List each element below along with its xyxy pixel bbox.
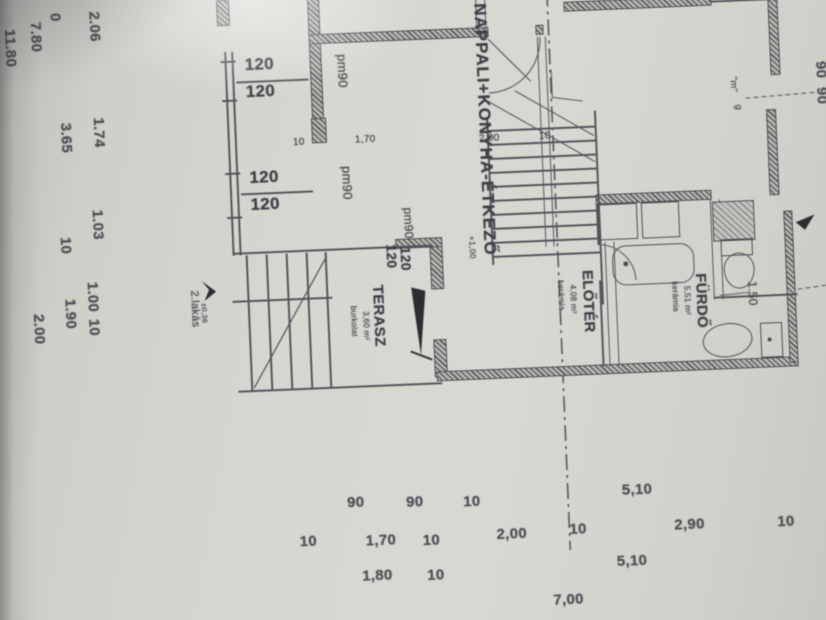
row1-dim-0: 90 bbox=[347, 495, 365, 511]
left-dim-2: 7.80 bbox=[28, 22, 44, 53]
left-dim-1: 0 bbox=[47, 13, 62, 22]
left-dim-6: 1.03 bbox=[90, 209, 106, 240]
dim-extension-right-low bbox=[797, 285, 826, 289]
sill-label-1: pm90 bbox=[335, 54, 349, 88]
window-label-1b: 120 bbox=[245, 82, 275, 100]
wall-top-door-jamb bbox=[535, 25, 543, 35]
area-label-furdo: 5,51 m² bbox=[682, 286, 691, 316]
row2-dim-4: 10 bbox=[569, 521, 587, 537]
entrance-arrow-tick bbox=[411, 351, 432, 361]
entrance-arrow bbox=[411, 287, 428, 356]
elevation-arrow-unit bbox=[202, 281, 217, 302]
sill-label-2: pm90 bbox=[340, 166, 354, 200]
stair-dim-2: 10 bbox=[539, 131, 551, 141]
left-dim-0: 2.06 bbox=[86, 11, 102, 42]
row2-dim-5: 2,90 bbox=[674, 516, 705, 532]
sink-unit-right bbox=[641, 201, 680, 239]
row1-dim-2: 10 bbox=[463, 494, 481, 510]
finish-label-eloter: kerámia bbox=[556, 280, 565, 311]
dim-extension-right-top bbox=[745, 92, 815, 98]
window-label-2b: 120 bbox=[250, 195, 280, 213]
door-leaf bbox=[488, 37, 531, 83]
row2-dim-3: 2,00 bbox=[496, 526, 527, 542]
row1-dim-1: 90 bbox=[406, 494, 424, 510]
window-label-2a: 120 bbox=[249, 168, 279, 186]
room-label-eloter: ELŐTÉR bbox=[580, 270, 598, 333]
finish-label-furdo: kerámia bbox=[670, 281, 679, 312]
row4-dim-0: 7,00 bbox=[553, 591, 584, 607]
row2-dim-0: 10 bbox=[299, 534, 317, 550]
left-dim-10: 10 bbox=[86, 318, 102, 336]
unit-label: 2.lakás bbox=[188, 290, 201, 327]
room-label-furdo: FÜRDŐ bbox=[693, 273, 710, 328]
stair-break-line-2 bbox=[515, 88, 594, 139]
sill-label-3: pm90 bbox=[402, 207, 415, 239]
room-label-terasz: TERASZ bbox=[370, 284, 388, 346]
sink-unit-left bbox=[599, 203, 638, 241]
elevation-label-nappali: +1,00 bbox=[468, 236, 477, 259]
row1-dim-3: 5,10 bbox=[622, 481, 653, 497]
wall-pillar bbox=[311, 118, 327, 144]
row2-dim-2: 10 bbox=[422, 532, 440, 548]
stair-dim-1: 2,00 bbox=[479, 134, 500, 145]
window-label-1a: 120 bbox=[244, 55, 274, 73]
mark-g-label: g bbox=[733, 104, 743, 110]
row3-dim-1: 10 bbox=[427, 567, 445, 583]
left-dim-7: 10 bbox=[58, 237, 74, 255]
left-dim-3: 11.80 bbox=[2, 29, 19, 68]
mark-m-label: "m" bbox=[728, 77, 738, 93]
wall-stub-top-left bbox=[216, 0, 230, 26]
area-label-terasz: 3,60 m² bbox=[361, 311, 370, 341]
plan-sheet: NAPPALI+KONYHA-ÉTKEZŐ +1,00 ELŐTÉR kerám… bbox=[0, 0, 826, 620]
inner-dim-2: 1,70 bbox=[355, 135, 376, 146]
edge-dim-1: 90 bbox=[813, 61, 826, 79]
left-dim-4: 1.74 bbox=[91, 117, 107, 148]
row3-dim-2: 5,10 bbox=[616, 553, 647, 569]
left-dim-8: 1.00 bbox=[85, 281, 101, 312]
left-dim-9: 1.90 bbox=[62, 298, 78, 329]
elevation-label-unit: ±0,36 bbox=[200, 303, 208, 324]
left-dim-11: 2.00 bbox=[31, 314, 47, 345]
elevation-arrow-right bbox=[795, 214, 815, 230]
edge-dim-2: 90 bbox=[814, 87, 826, 105]
corner-mark bbox=[551, 69, 582, 102]
row2-dim-1: 1,70 bbox=[365, 532, 396, 548]
finish-label-terasz: burkolat bbox=[349, 306, 358, 337]
left-dim-5: 3.65 bbox=[58, 122, 74, 153]
area-label-eloter: 4,08 m² bbox=[568, 284, 577, 314]
floor-plan-photo: NAPPALI+KONYHA-ÉTKEZŐ +1,00 ELŐTÉR kerám… bbox=[0, 0, 826, 620]
washing-machine bbox=[712, 200, 756, 242]
row3-dim-0: 1,80 bbox=[362, 567, 393, 583]
section-line bbox=[547, 0, 570, 550]
wc-width-label: 1.50 bbox=[746, 281, 759, 306]
row2-dim-6: 10 bbox=[777, 514, 795, 530]
inner-dim-1: 10 bbox=[293, 138, 305, 148]
window-label-3b: 120 bbox=[398, 246, 413, 271]
